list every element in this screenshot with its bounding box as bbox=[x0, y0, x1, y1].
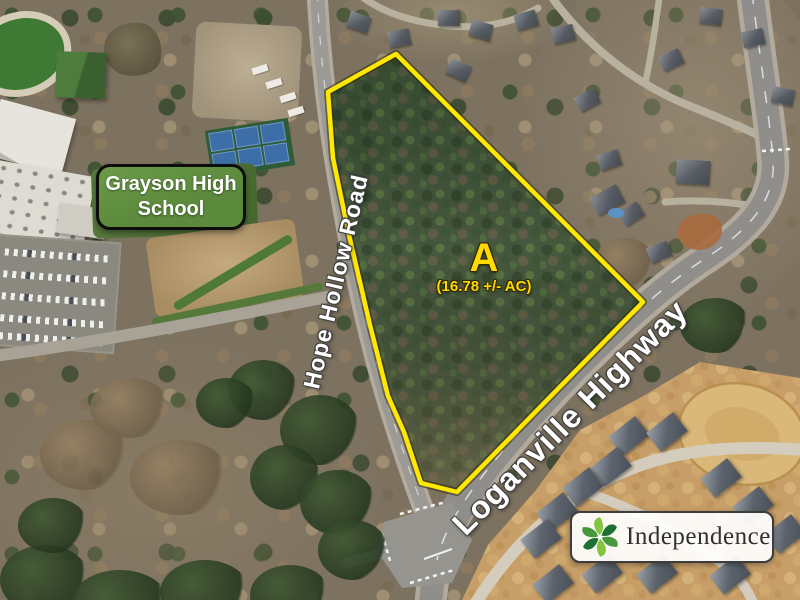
broker-logo-text: Independence bbox=[626, 523, 771, 551]
parcel-boundary-layer bbox=[0, 0, 800, 600]
leaf-swirl-icon bbox=[580, 517, 620, 557]
aerial-photo-background: Hope Hollow Road Loganville Highway A (1… bbox=[0, 0, 800, 600]
parcel-letter-label: A bbox=[449, 236, 519, 281]
broker-logo: Independence bbox=[570, 511, 774, 563]
parcel-acreage-label: (16.78 +/- AC) bbox=[414, 278, 554, 295]
school-name-callout: Grayson High School bbox=[96, 164, 246, 230]
school-name-text: Grayson High School bbox=[105, 172, 237, 222]
